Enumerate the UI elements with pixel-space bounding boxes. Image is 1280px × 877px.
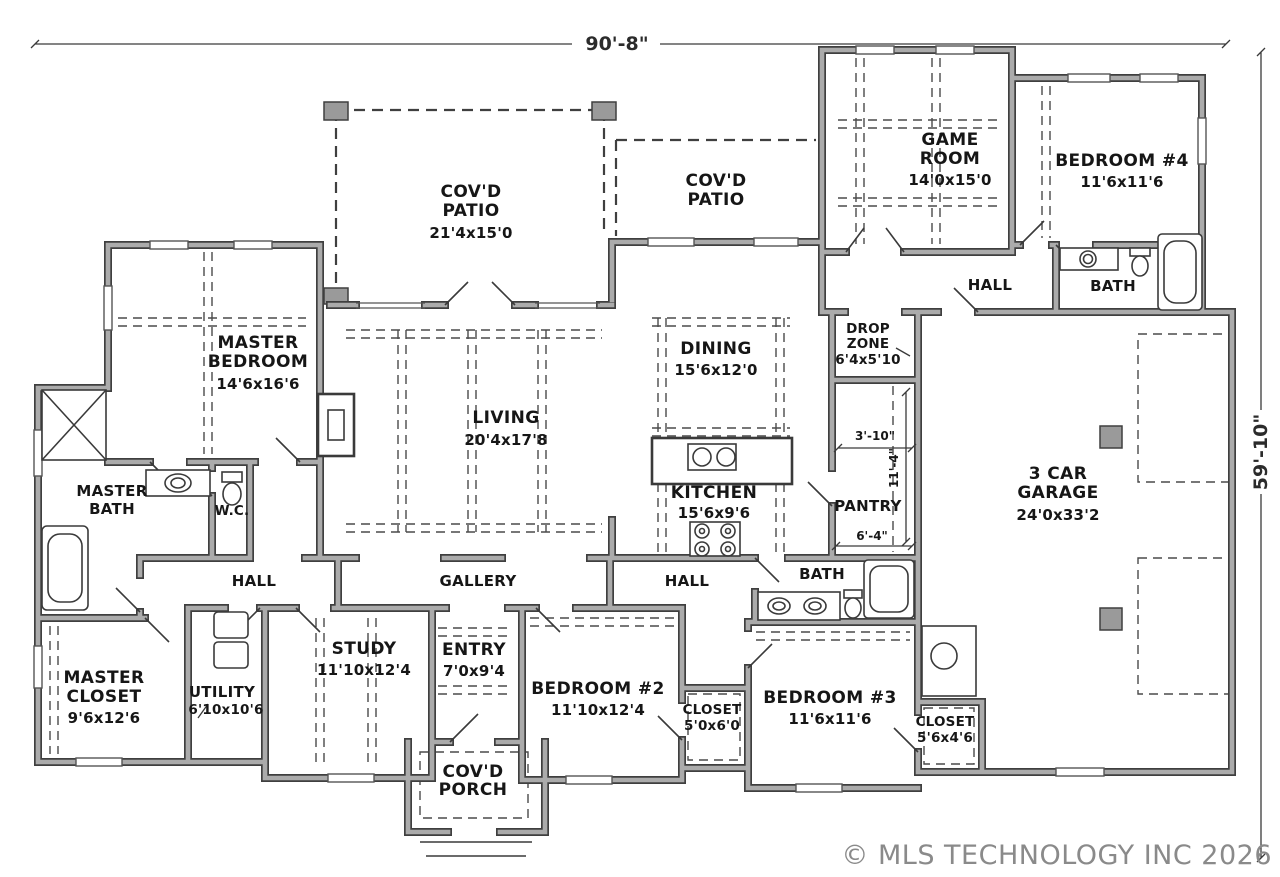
washer-dryer-icon bbox=[214, 612, 248, 668]
room-label-closet-2: CLOSET bbox=[683, 702, 742, 718]
pantry-depth-dimension: 11'-4" bbox=[887, 448, 901, 488]
upper-bath-vanity-icon bbox=[1060, 248, 1118, 270]
room-label-master-bedroom: BEDROOM bbox=[208, 352, 308, 372]
water-heater-icon bbox=[922, 626, 976, 696]
toilet-icon bbox=[844, 590, 862, 618]
room-dims-dining: 15'6x12'0 bbox=[674, 361, 757, 379]
room-label-hall-left: HALL bbox=[232, 572, 277, 590]
floor-plan-drawing: 90'-8" 59'-10" 3'-10" 11'-4" 6'-4" COV'D… bbox=[0, 0, 1280, 877]
mud-hall-dimension: 6'-4" bbox=[856, 529, 888, 543]
room-dims-bedroom-3: 11'6x11'6 bbox=[788, 710, 871, 728]
porch-steps bbox=[420, 842, 532, 856]
room-label-covd-patio-left: PATIO bbox=[442, 201, 499, 221]
room-dims-drop-zone: 6'4x5'10 bbox=[835, 352, 901, 368]
copyright-watermark: © MLS TECHNOLOGY INC 2026 bbox=[841, 840, 1272, 871]
room-dims-utility: 6'10x10'6 bbox=[188, 702, 263, 718]
room-label-entry: ENTRY bbox=[442, 640, 506, 660]
room-label-bedroom-3: BEDROOM #3 bbox=[763, 688, 897, 708]
pantry-width-dimension: 3'-10" bbox=[855, 429, 895, 443]
room-dims-kitchen: 15'6x9'6 bbox=[678, 504, 751, 522]
room-label-game-room: GAME bbox=[921, 130, 978, 150]
room-label-master-closet: CLOSET bbox=[66, 687, 141, 707]
room-label-master-closet: MASTER bbox=[63, 668, 144, 688]
room-label-covd-patio-right: COV'D bbox=[686, 171, 747, 191]
room-label-drop-zone: DROP bbox=[846, 321, 890, 337]
kitchen-island bbox=[652, 438, 792, 484]
room-label-garage: GARAGE bbox=[1017, 483, 1098, 503]
room-label-study: STUDY bbox=[332, 639, 397, 659]
room-label-kitchen: KITCHEN bbox=[671, 483, 757, 503]
room-label-master-bath: MASTER bbox=[76, 482, 147, 500]
room-label-hall-center: HALL bbox=[665, 572, 710, 590]
room-label-pantry: PANTRY bbox=[834, 497, 902, 515]
sink-icon bbox=[146, 470, 210, 496]
room-label-covd-patio-left: COV'D bbox=[441, 182, 502, 202]
room-label-bath-lower: BATH bbox=[799, 565, 845, 583]
room-dims-master-closet: 9'6x12'6 bbox=[68, 709, 141, 727]
room-dims-living: 20'4x17'8 bbox=[464, 431, 547, 449]
room-dims-entry: 7'0x9'4 bbox=[443, 662, 505, 680]
bathtub-icon bbox=[42, 526, 88, 610]
overall-width-dimension: 90'-8" bbox=[585, 33, 648, 55]
room-label-covd-patio-right: PATIO bbox=[687, 190, 744, 210]
room-dims-closet-2: 5'0x6'0 bbox=[684, 718, 740, 734]
room-dims-closet-3: 5'6x4'6 bbox=[917, 730, 973, 746]
floor-plan-page: 90'-8" 59'-10" 3'-10" 11'-4" 6'-4" COV'D… bbox=[0, 0, 1280, 877]
room-label-gallery: GALLERY bbox=[440, 572, 518, 590]
room-dims-bedroom-4: 11'6x11'6 bbox=[1080, 173, 1163, 191]
room-label-dining: DINING bbox=[680, 339, 752, 359]
room-label-garage: 3 CAR bbox=[1029, 464, 1087, 484]
fireplace-icon bbox=[318, 394, 354, 456]
room-label-bath-upper: BATH bbox=[1090, 277, 1136, 295]
room-label-covd-porch: PORCH bbox=[439, 780, 508, 800]
room-dims-covd-patio-left: 21'4x15'0 bbox=[429, 224, 512, 242]
room-dims-bedroom-2: 11'10x12'4 bbox=[551, 701, 645, 719]
bath-vanity-double-sink-icon bbox=[758, 592, 840, 620]
room-dims-garage: 24'0x33'2 bbox=[1016, 506, 1099, 524]
room-label-master-bath: BATH bbox=[89, 500, 135, 518]
room-label-living: LIVING bbox=[472, 408, 539, 428]
bathtub-icon bbox=[1158, 234, 1202, 310]
room-dims-master-bedroom: 14'6x16'6 bbox=[216, 375, 299, 393]
room-label-wc: W.C. bbox=[215, 503, 250, 519]
room-label-game-room: ROOM bbox=[920, 149, 981, 169]
overall-depth-dimension: 59'-10" bbox=[1250, 414, 1272, 490]
room-label-hall-upper: HALL bbox=[968, 276, 1013, 294]
room-label-bedroom-2: BEDROOM #2 bbox=[531, 679, 665, 699]
room-label-utility: UTILITY bbox=[189, 683, 256, 701]
shower-icon bbox=[42, 390, 106, 460]
room-label-drop-zone: ZONE bbox=[847, 336, 890, 352]
room-label-bedroom-4: BEDROOM #4 bbox=[1055, 151, 1189, 171]
room-label-master-bedroom: MASTER bbox=[217, 333, 298, 353]
door-swings bbox=[116, 221, 1080, 752]
room-label-covd-porch: COV'D bbox=[443, 762, 504, 782]
toilet-icon bbox=[222, 472, 242, 505]
room-dims-game-room: 14'0x15'0 bbox=[908, 171, 991, 189]
toilet-icon bbox=[1130, 248, 1150, 276]
stove-icon bbox=[690, 522, 740, 556]
bathtub-icon bbox=[864, 560, 914, 618]
room-label-closet-3: CLOSET bbox=[916, 714, 975, 730]
room-dims-study: 11'10x12'4 bbox=[317, 661, 411, 679]
